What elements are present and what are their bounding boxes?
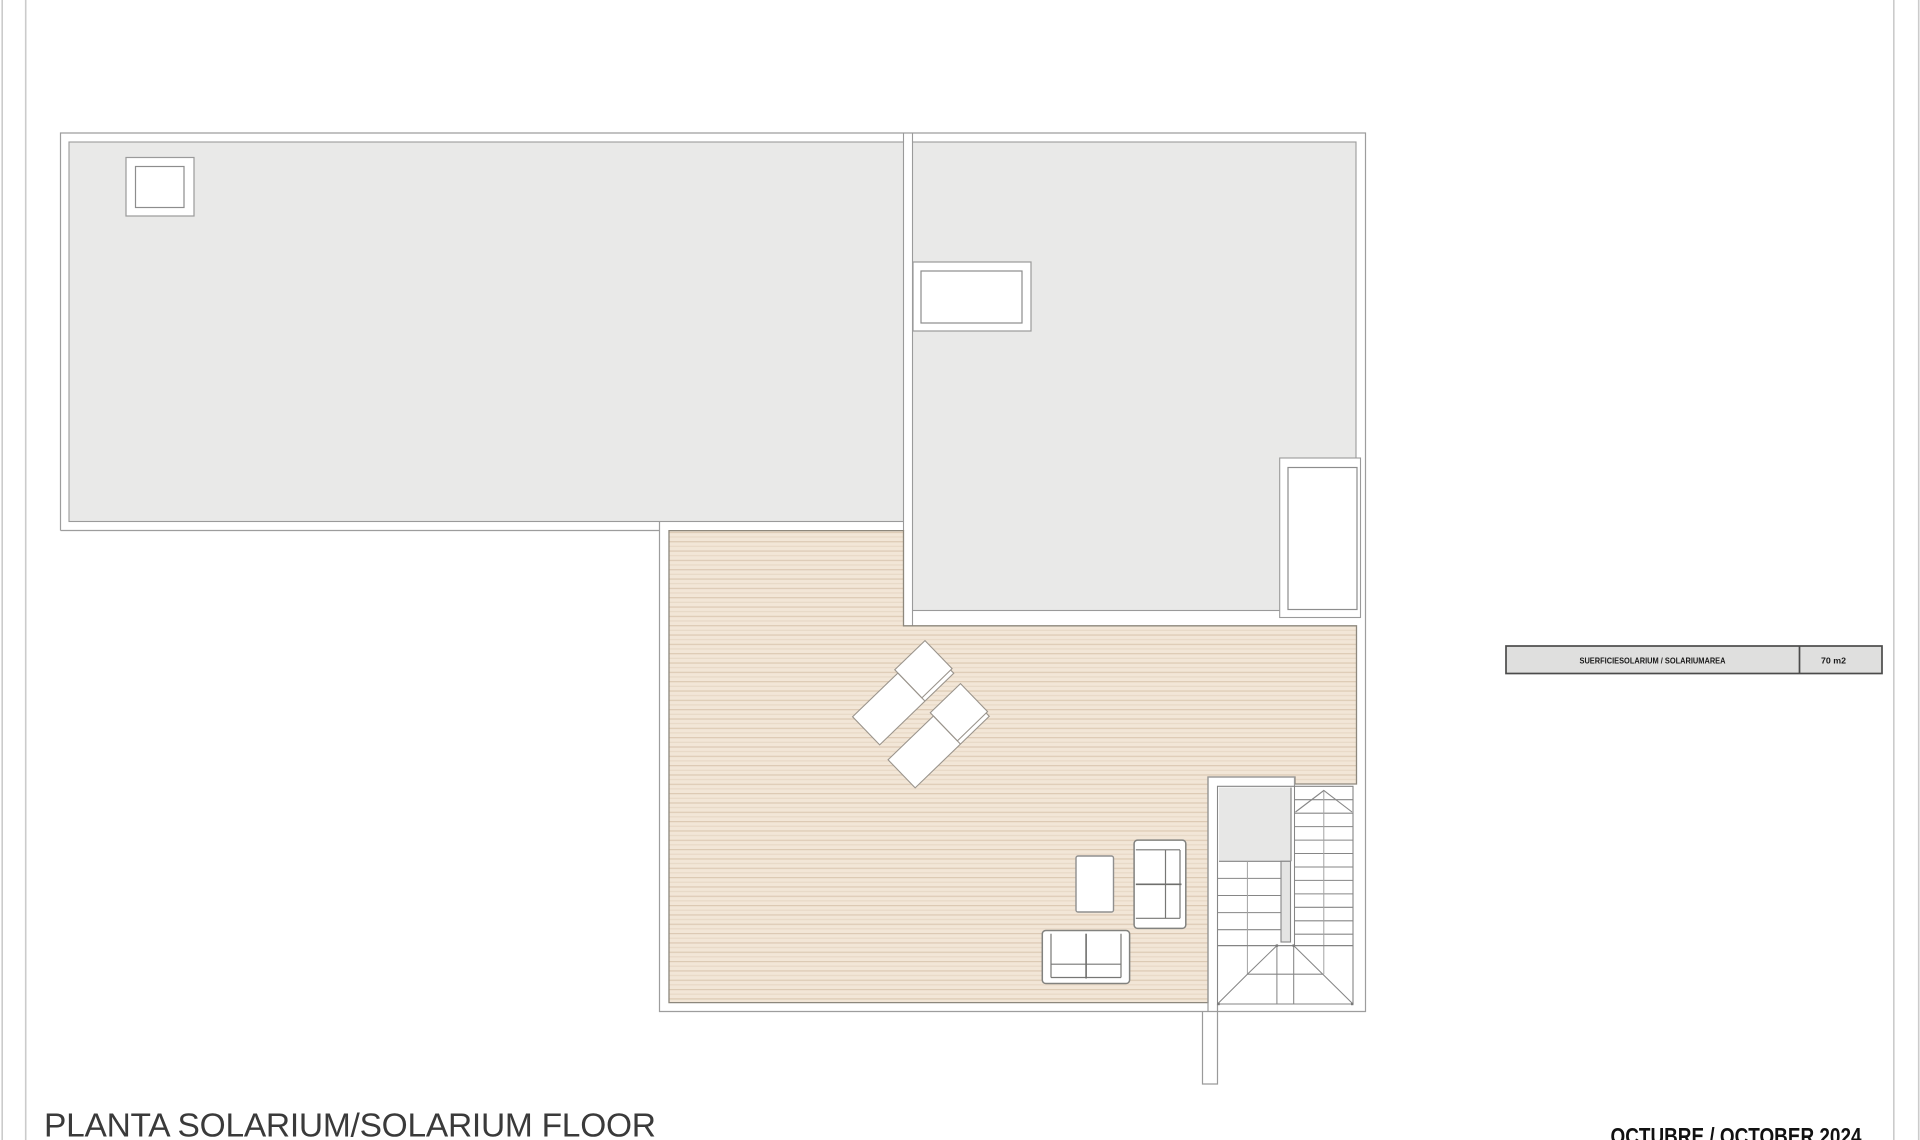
svg-text:70 m2: 70 m2 [1821, 656, 1846, 666]
svg-text:PLANTA SOLARIUM/SOLARIUM FLOOR: PLANTA SOLARIUM/SOLARIUM FLOOR [44, 1107, 656, 1140]
svg-text:SUERFICIESOLARIUM / SOLARIUMAR: SUERFICIESOLARIUM / SOLARIUMAREA [1580, 656, 1726, 666]
svg-text:OCTUBRE / OCTOBER 2024: OCTUBRE / OCTOBER 2024 [1611, 1123, 1862, 1140]
